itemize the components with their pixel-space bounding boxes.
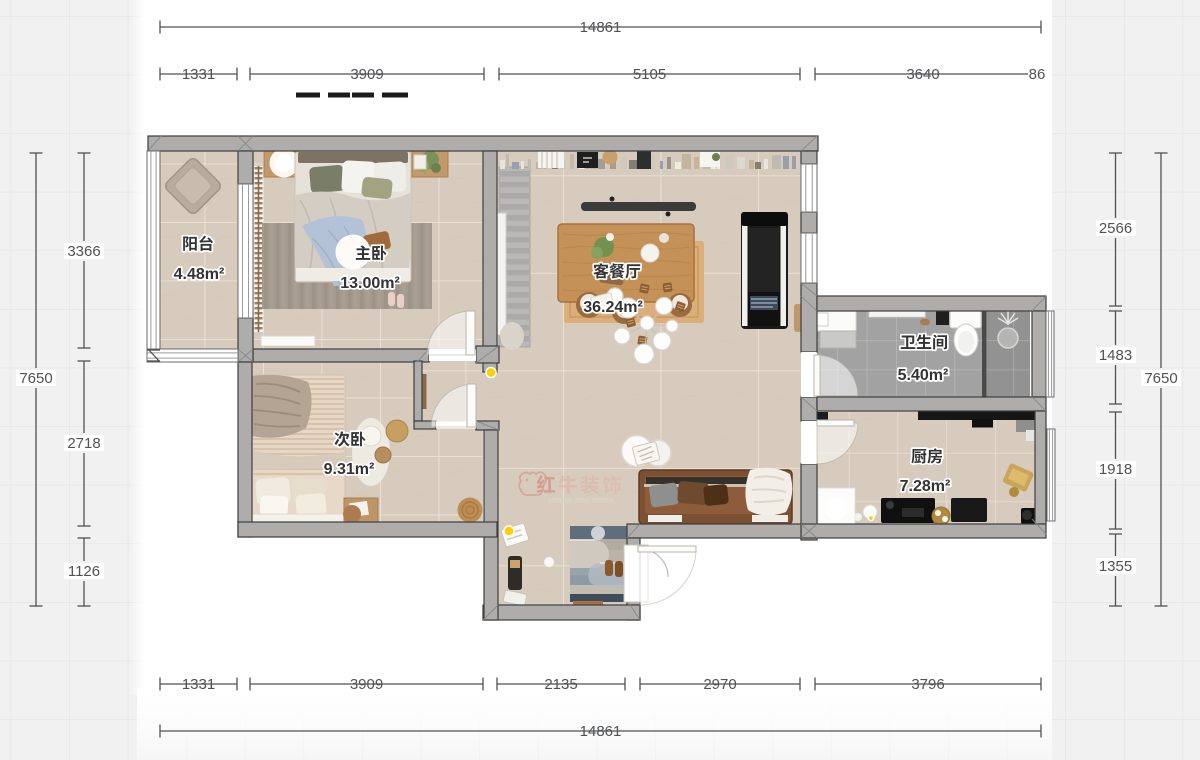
svg-text:36.24m²: 36.24m²: [583, 299, 643, 316]
svg-text:7.28m²: 7.28m²: [900, 478, 951, 495]
svg-text:86: 86: [1029, 66, 1046, 83]
svg-text:14861: 14861: [580, 19, 622, 36]
svg-text:5.40m²: 5.40m²: [898, 367, 949, 384]
svg-text:7650: 7650: [1144, 370, 1177, 387]
svg-text:1331: 1331: [182, 66, 215, 83]
svg-text:4.48m²: 4.48m²: [174, 266, 225, 283]
svg-text:7650: 7650: [19, 370, 52, 387]
svg-text:5105: 5105: [633, 66, 666, 83]
svg-text:3640: 3640: [906, 66, 939, 83]
svg-text:1355: 1355: [1099, 558, 1132, 575]
svg-text:1331: 1331: [182, 676, 215, 693]
svg-text:1126: 1126: [68, 563, 100, 580]
svg-text:1483: 1483: [1099, 347, 1132, 364]
svg-text:3366: 3366: [67, 243, 100, 260]
svg-text:3796: 3796: [911, 676, 944, 693]
svg-text:14861: 14861: [580, 723, 622, 740]
svg-text:2718: 2718: [67, 435, 100, 452]
svg-text:3909: 3909: [350, 66, 383, 83]
svg-text:2566: 2566: [1099, 220, 1132, 237]
svg-text:2970: 2970: [703, 676, 736, 693]
svg-text:3909: 3909: [350, 676, 383, 693]
svg-text:1918: 1918: [1099, 461, 1132, 478]
svg-text:13.00m²: 13.00m²: [340, 275, 400, 292]
svg-text:2135: 2135: [544, 676, 577, 693]
svg-text:9.31m²: 9.31m²: [324, 461, 375, 478]
